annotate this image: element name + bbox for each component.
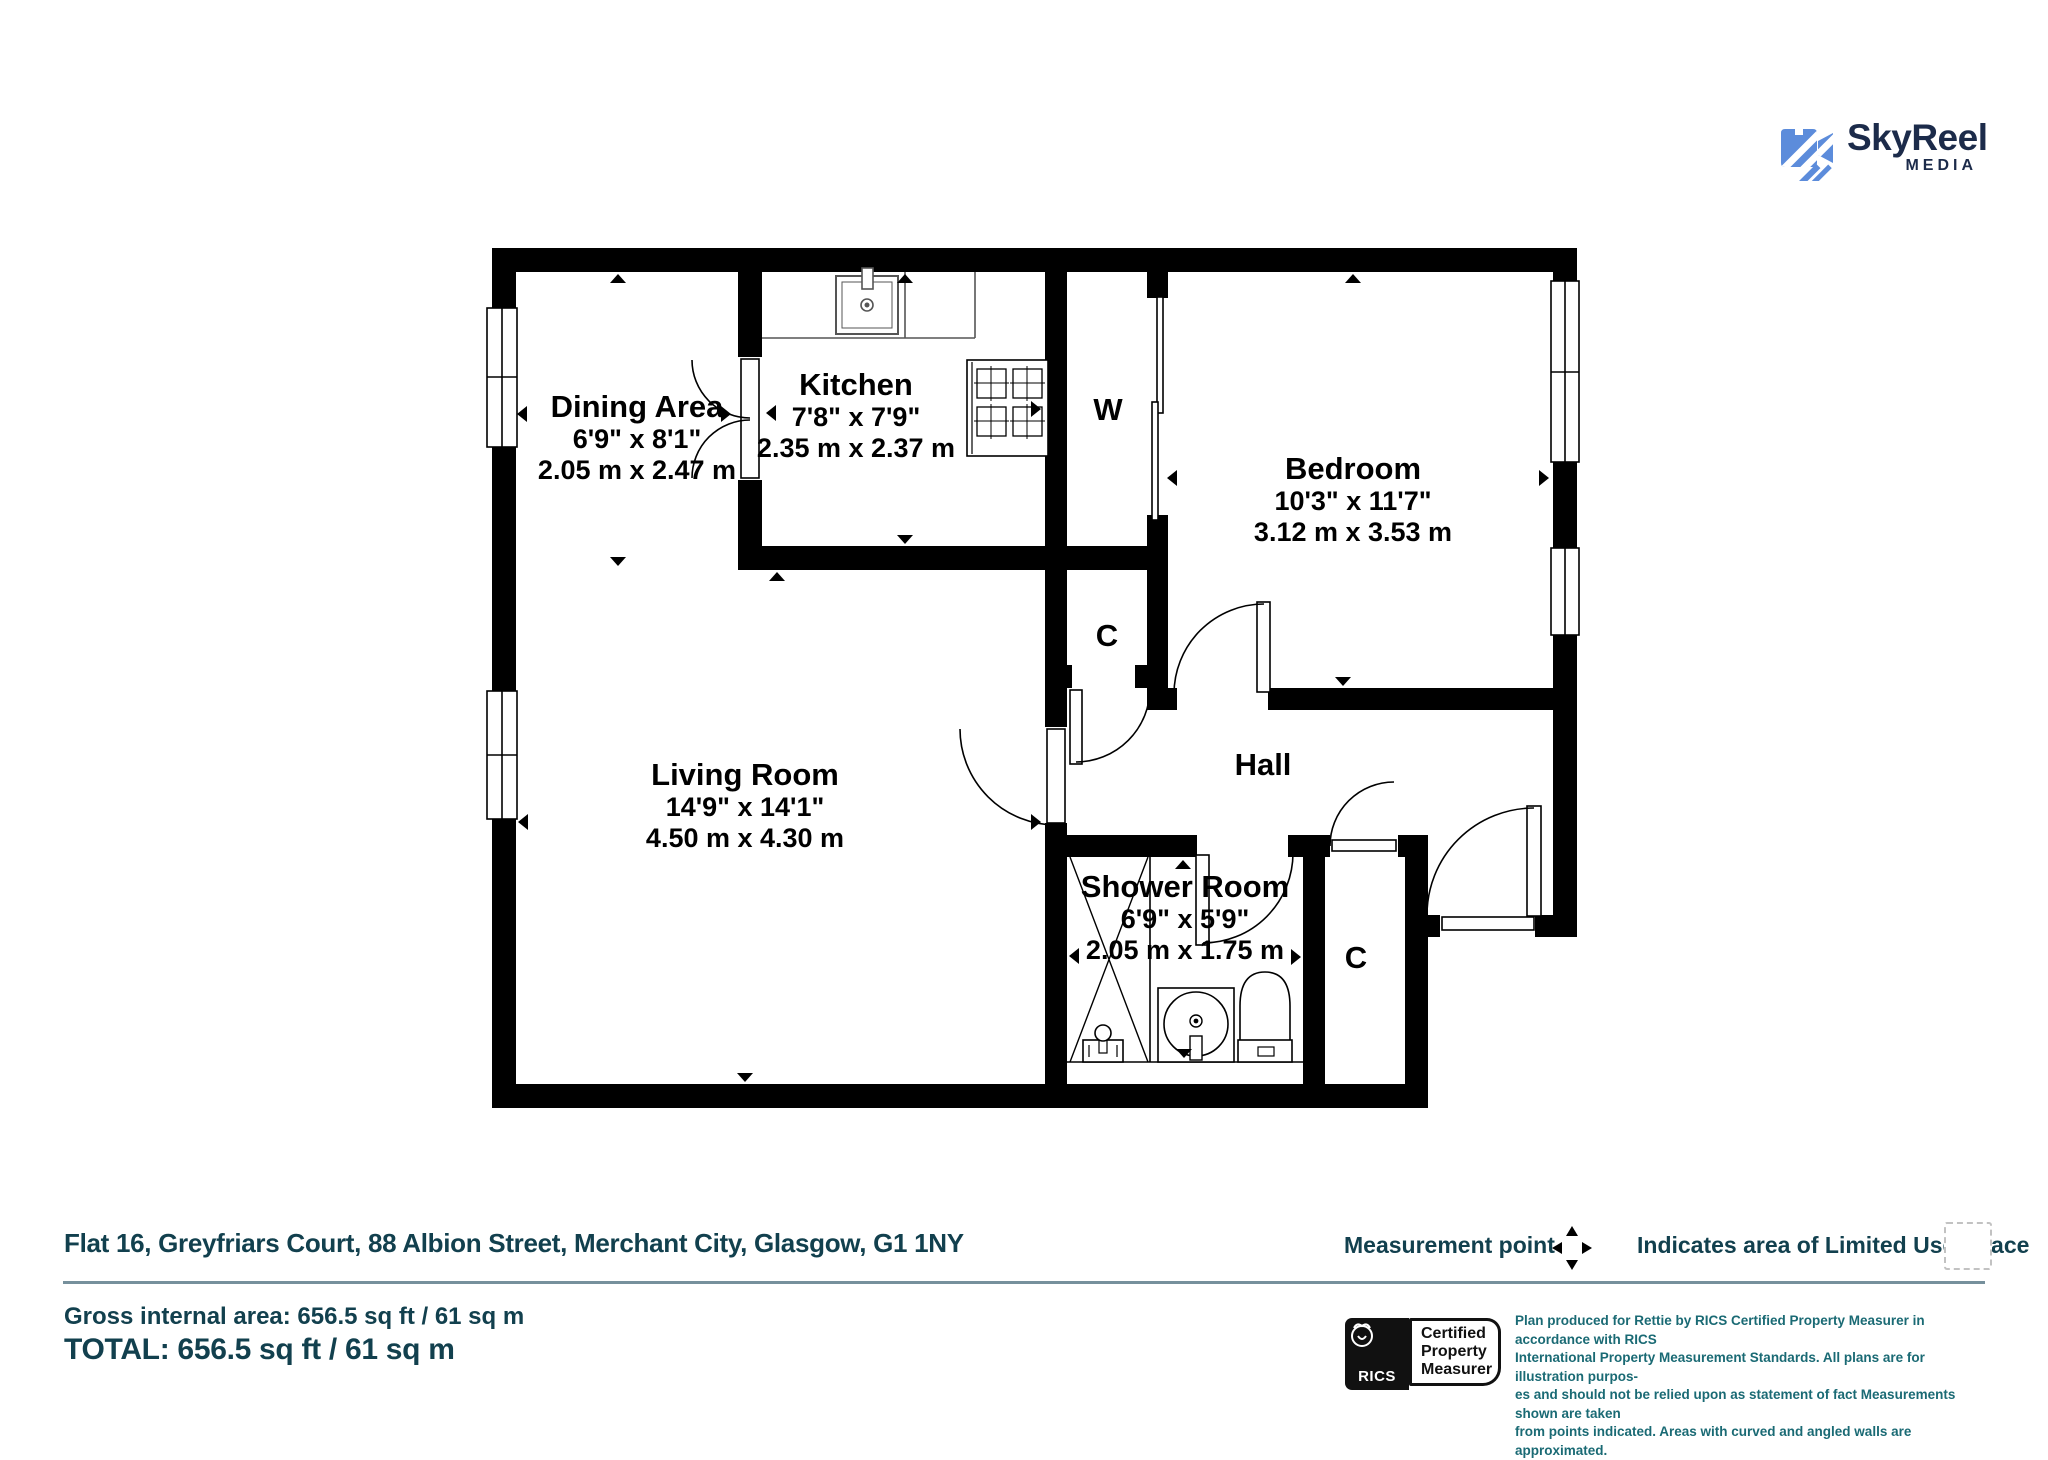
disclaimer-line: from points indicated. Areas with curved… <box>1515 1423 1995 1460</box>
footer-divider <box>63 1281 1985 1284</box>
toilet-icon <box>1238 972 1292 1062</box>
disclaimer-line: Plan produced for Rettie by RICS Certifi… <box>1515 1312 1995 1349</box>
window-bedroom-2 <box>1551 548 1579 635</box>
room-label-living: Living Room 14'9" x 14'1" 4.50 m x 4.30 … <box>646 758 844 854</box>
rics-brand-text: RICS <box>1358 1368 1396 1385</box>
room-label-dining: Dining Area 6'9" x 8'1" 2.05 m x 2.47 m <box>538 390 736 486</box>
room-name: Shower Room <box>1081 870 1289 904</box>
room-label-hall: Hall <box>1235 748 1292 782</box>
room-label-bedroom: Bedroom 10'3" x 11'7" 3.12 m x 3.53 m <box>1254 452 1452 548</box>
window-living <box>487 691 517 819</box>
wardrobe-sliding-doors <box>1152 297 1163 520</box>
room-name: Dining Area <box>538 390 736 424</box>
door-bedroom <box>1174 602 1270 694</box>
room-dim-metric: 3.12 m x 3.53 m <box>1254 517 1452 548</box>
room-dim-imperial: 6'9" x 8'1" <box>538 424 736 455</box>
disclaimer-line: es and should not be relied upon as stat… <box>1515 1386 1995 1423</box>
rics-certified-badge: RICS Certified Property Measurer <box>1345 1318 1503 1390</box>
room-name: C <box>1096 618 1118 654</box>
rics-line: Property <box>1421 1343 1498 1361</box>
room-label-kitchen: Kitchen 7'8" x 7'9" 2.35 m x 2.37 m <box>757 368 955 464</box>
room-dim-imperial: 7'8" x 7'9" <box>757 402 955 433</box>
room-label-wardrobe: W <box>1093 392 1122 428</box>
room-name: C <box>1345 940 1367 976</box>
basin-icon <box>1158 988 1234 1062</box>
measurement-point-label: Measurement point <box>1344 1232 1555 1259</box>
room-dim-metric: 2.05 m x 1.75 m <box>1081 935 1289 966</box>
logo-subtitle: MEDIA <box>1847 157 1977 175</box>
room-name: Living Room <box>646 758 844 792</box>
plan-disclaimer: Plan produced for Rettie by RICS Certifi… <box>1515 1312 1995 1460</box>
property-address: Flat 16, Greyfriars Court, 88 Albion Str… <box>64 1228 964 1259</box>
rics-lion-icon <box>1345 1318 1379 1352</box>
room-dim-imperial: 10'3" x 11'7" <box>1254 486 1452 517</box>
room-name: W <box>1093 392 1122 428</box>
door-living-hall <box>960 729 1065 825</box>
window-bedroom-1 <box>1551 281 1579 462</box>
disclaimer-line: International Property Measurement Stand… <box>1515 1349 1995 1386</box>
kitchen-sink-icon <box>836 268 898 334</box>
room-name: Hall <box>1235 748 1292 782</box>
total-area: TOTAL: 656.5 sq ft / 61 sq m <box>64 1333 455 1367</box>
room-name: Bedroom <box>1254 452 1452 486</box>
door-cupboard-2 <box>1330 782 1396 851</box>
gross-internal-area: Gross internal area: 656.5 sq ft / 61 sq… <box>64 1303 524 1331</box>
window-dining <box>487 308 517 447</box>
limited-use-space-swatch <box>1944 1222 1992 1270</box>
room-label-cupboard-2: C <box>1345 940 1367 976</box>
rics-logo: RICS <box>1345 1318 1409 1390</box>
room-dim-metric: 2.05 m x 2.47 m <box>538 455 736 486</box>
measurement-point-icon <box>1552 1226 1592 1270</box>
room-dim-metric: 4.50 m x 4.30 m <box>646 823 844 854</box>
door-cupboard-1 <box>1070 688 1150 764</box>
skyreel-camera-icon <box>1775 117 1839 181</box>
room-label-shower: Shower Room 6'9" x 5'9" 2.05 m x 1.75 m <box>1081 870 1289 966</box>
room-dim-imperial: 14'9" x 14'1" <box>646 792 844 823</box>
room-label-cupboard-1: C <box>1096 618 1118 654</box>
skyreel-logo: SkyReel MEDIA <box>1775 115 1985 185</box>
rics-certified-text: Certified Property Measurer <box>1409 1318 1501 1386</box>
room-dim-metric: 2.35 m x 2.37 m <box>757 433 955 464</box>
door-entrance <box>1427 806 1541 930</box>
rics-line: Certified <box>1421 1325 1498 1343</box>
room-name: Kitchen <box>757 368 955 402</box>
logo-wordmark: SkyReel <box>1847 117 1979 159</box>
room-dim-imperial: 6'9" x 5'9" <box>1081 904 1289 935</box>
rics-line: Measurer <box>1421 1361 1498 1379</box>
